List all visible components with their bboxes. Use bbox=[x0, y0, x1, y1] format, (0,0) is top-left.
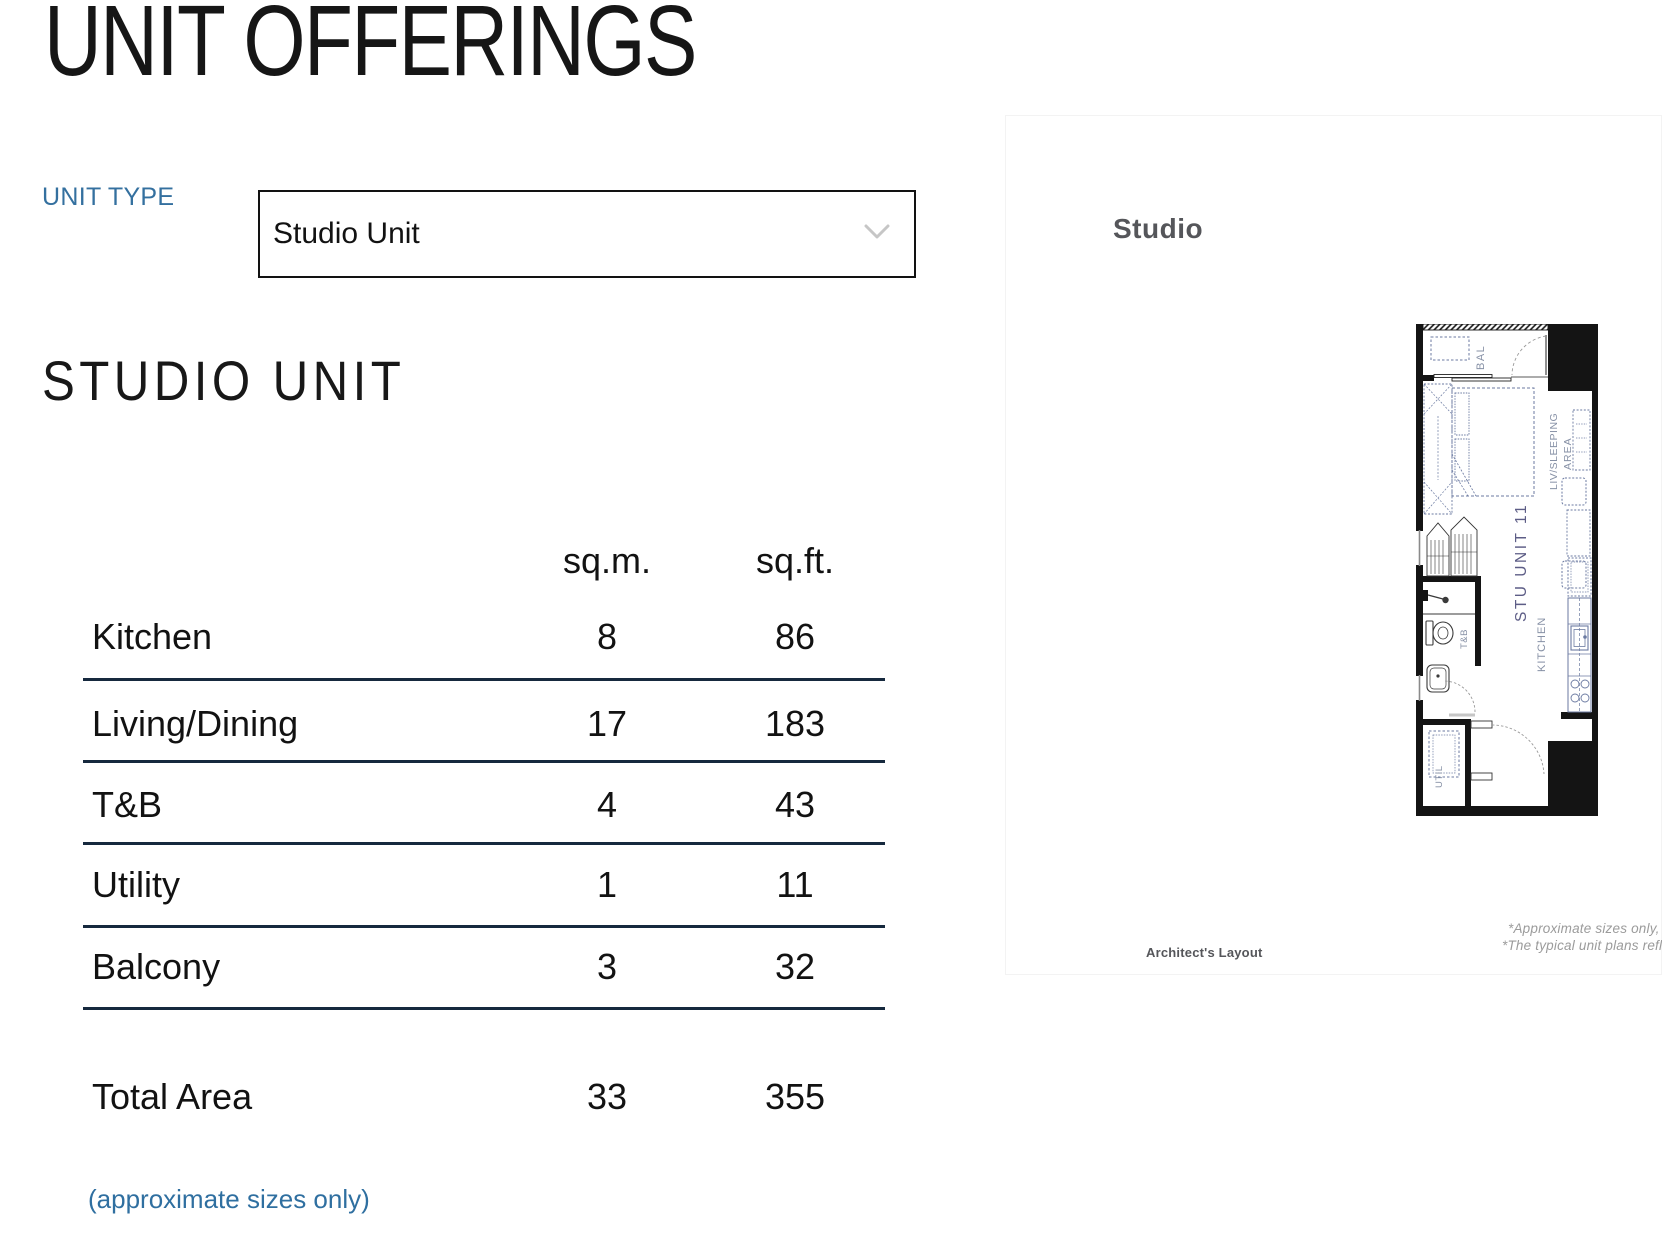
bathroom-fixtures bbox=[1423, 595, 1475, 715]
unit-type-select[interactable]: Studio Unit bbox=[258, 190, 916, 278]
row-divider bbox=[83, 678, 885, 681]
plan-label-unit-number: STU UNIT 11 bbox=[1513, 503, 1530, 622]
plan-label-utility: UTIL bbox=[1434, 765, 1445, 788]
total-label: Total Area bbox=[92, 1078, 252, 1116]
approximate-sizes-note: (approximate sizes only) bbox=[88, 1184, 370, 1215]
column-header-sqft: sq.ft. bbox=[725, 540, 865, 582]
row-sqft-value: 11 bbox=[725, 866, 865, 904]
row-divider bbox=[83, 925, 885, 928]
plan-title: Studio bbox=[1113, 213, 1203, 245]
row-sqm-value: 4 bbox=[537, 786, 677, 824]
plan-label-kitchen: KITCHEN bbox=[1536, 617, 1548, 672]
column-header-sqm: sq.m. bbox=[537, 540, 677, 582]
row-label: Balcony bbox=[92, 948, 220, 986]
row-sqm-value: 3 bbox=[537, 948, 677, 986]
unit-type-label: UNIT TYPE bbox=[42, 183, 174, 212]
row-sqm-value: 8 bbox=[537, 618, 677, 656]
disclaimer-line-1: *Approximate sizes only, r bbox=[1508, 921, 1662, 936]
row-divider bbox=[83, 1007, 885, 1010]
chevron-down-icon bbox=[864, 224, 890, 240]
total-sqft-value: 355 bbox=[725, 1078, 865, 1116]
table-row: Kitchen 8 86 bbox=[92, 618, 885, 656]
disclaimer-line-2: *The typical unit plans refle bbox=[1502, 938, 1662, 953]
plan-label-living-line2: AREA bbox=[1562, 437, 1574, 470]
page-title: UNIT OFFERINGS bbox=[44, 0, 696, 99]
row-label: Utility bbox=[92, 866, 180, 904]
row-divider bbox=[83, 842, 885, 845]
row-label: T&B bbox=[92, 786, 162, 824]
plan-label-living-line1: LIV/SLEEPING bbox=[1548, 413, 1560, 490]
entry-door bbox=[1471, 721, 1544, 780]
balcony-sliding-door bbox=[1434, 335, 1548, 381]
table-header: sq.m. sq.ft. bbox=[92, 540, 885, 578]
row-sqft-value: 86 bbox=[725, 618, 865, 656]
floor-plan-panel: Studio bbox=[1005, 115, 1662, 975]
plan-label-balcony: BAL bbox=[1475, 345, 1487, 370]
unit-offerings-page: { "page": { "title": "UNIT OFFERINGS", "… bbox=[0, 0, 1662, 1254]
table-row: Utility 1 11 bbox=[92, 866, 885, 904]
row-sqft-value: 183 bbox=[725, 705, 865, 743]
section-heading: STUDIO UNIT bbox=[42, 348, 405, 413]
table-total-row: Total Area 33 355 bbox=[92, 1078, 885, 1116]
unit-type-selected-value: Studio Unit bbox=[273, 192, 420, 276]
row-sqft-value: 43 bbox=[725, 786, 865, 824]
floor-plan-svg: BAL LIV/SLEEPING AREA STU UNIT 11 KITCHE… bbox=[1416, 324, 1598, 816]
row-label: Living/Dining bbox=[92, 705, 298, 743]
row-sqft-value: 32 bbox=[725, 948, 865, 986]
closet-symbols bbox=[1427, 517, 1477, 576]
total-sqm-value: 33 bbox=[537, 1078, 677, 1116]
row-divider bbox=[83, 760, 885, 763]
row-sqm-value: 1 bbox=[537, 866, 677, 904]
plan-label-bath: T&B bbox=[1459, 629, 1470, 649]
table-row: Balcony 3 32 bbox=[92, 948, 885, 986]
architects-layout-caption: Architect's Layout bbox=[1146, 945, 1263, 960]
row-sqm-value: 17 bbox=[537, 705, 677, 743]
table-row: T&B 4 43 bbox=[92, 786, 885, 824]
balcony-railing bbox=[1423, 324, 1548, 330]
table-row: Living/Dining 17 183 bbox=[92, 705, 885, 743]
row-label: Kitchen bbox=[92, 618, 212, 656]
